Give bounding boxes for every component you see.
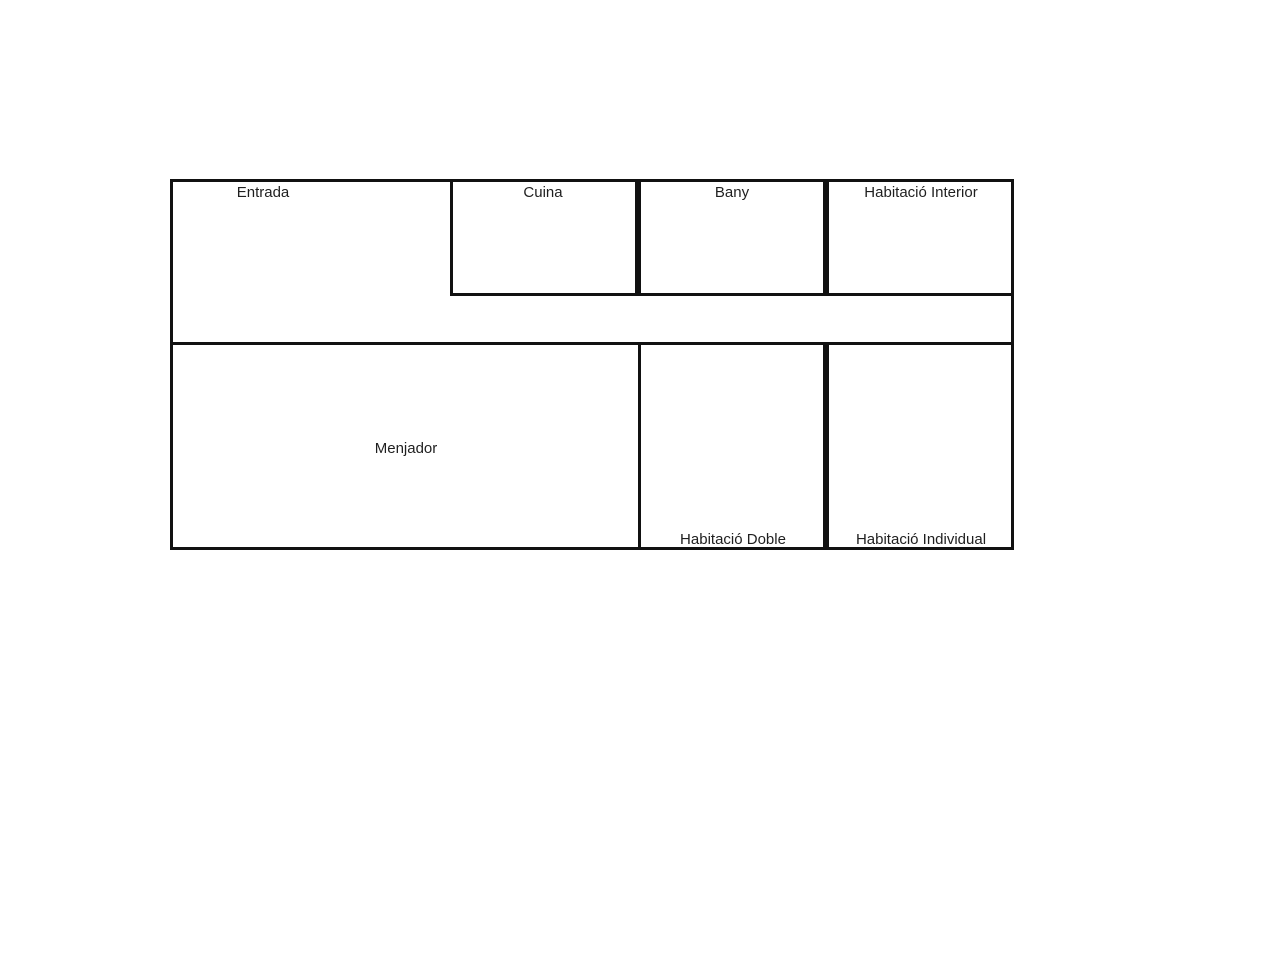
room-label-menjador: Menjador: [375, 440, 438, 458]
room-entrada: [173, 182, 450, 342]
room-habitacio-doble: [638, 342, 826, 550]
room-label-habitacio-individual: Habitació Individual: [856, 531, 986, 549]
room-label-bany: Bany: [715, 184, 749, 202]
room-label-entrada: Entrada: [237, 184, 290, 202]
room-label-cuina: Cuina: [523, 184, 562, 202]
room-label-habitacio-doble: Habitació Doble: [680, 531, 786, 549]
room-label-habitacio-interior: Habitació Interior: [864, 184, 977, 202]
room-habitacio-individual: [826, 342, 1014, 550]
floor-plan-canvas: Entrada Cuina Bany Habitació Interior Me…: [0, 0, 1280, 960]
